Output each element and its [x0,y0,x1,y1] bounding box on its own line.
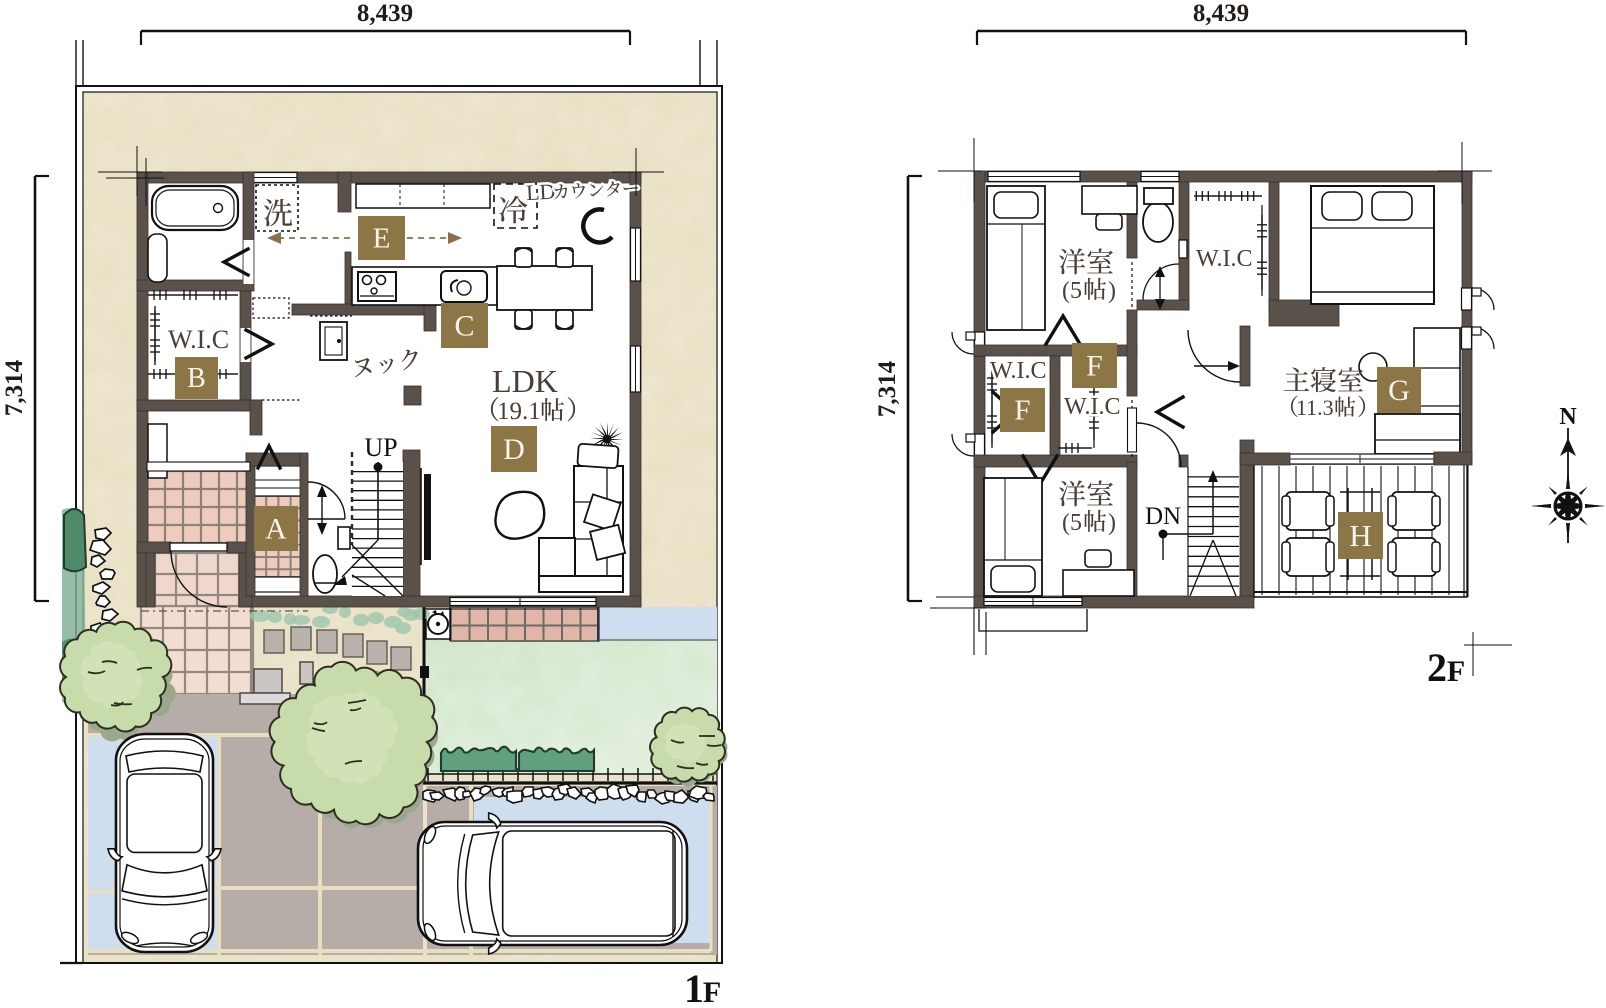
svg-text:19.1: 19.1 [497,398,541,425]
svg-text:8,439: 8,439 [357,0,413,27]
svg-text:DN: DN [1145,503,1181,530]
svg-text:LD: LD [525,179,556,206]
svg-text:2: 2 [1427,645,1447,690]
svg-text:W.I.C: W.I.C [990,358,1046,384]
svg-text:W.I.C: W.I.C [168,325,229,354]
svg-text:(5: (5 [1062,278,1082,304]
svg-text:7,314: 7,314 [874,360,901,417]
svg-text:11.3: 11.3 [1296,395,1334,420]
svg-text:): ) [1108,510,1116,536]
svg-text:W.I.C: W.I.C [1196,246,1252,272]
svg-text:(5: (5 [1062,510,1082,536]
svg-text:F: F [1447,655,1465,688]
svg-text:G: G [1388,374,1410,407]
svg-text:W.I.C: W.I.C [1064,394,1120,420]
svg-text:D: D [503,433,525,466]
svg-text:8,439: 8,439 [1193,0,1249,27]
svg-text:7,314: 7,314 [1,359,28,416]
svg-text:H: H [1349,518,1371,553]
svg-text:F: F [1086,349,1103,382]
svg-text:B: B [187,363,206,394]
svg-text:N: N [1559,404,1577,430]
svg-text:LDK: LDK [492,363,558,399]
svg-text:1: 1 [684,966,704,1008]
svg-text:UP: UP [364,433,397,462]
svg-text:C: C [454,309,474,342]
svg-text:E: E [373,223,391,255]
svg-text:): ) [1108,278,1116,304]
svg-text:A: A [265,512,287,545]
svg-text:F: F [1014,395,1030,427]
svg-text:F: F [703,976,721,1008]
